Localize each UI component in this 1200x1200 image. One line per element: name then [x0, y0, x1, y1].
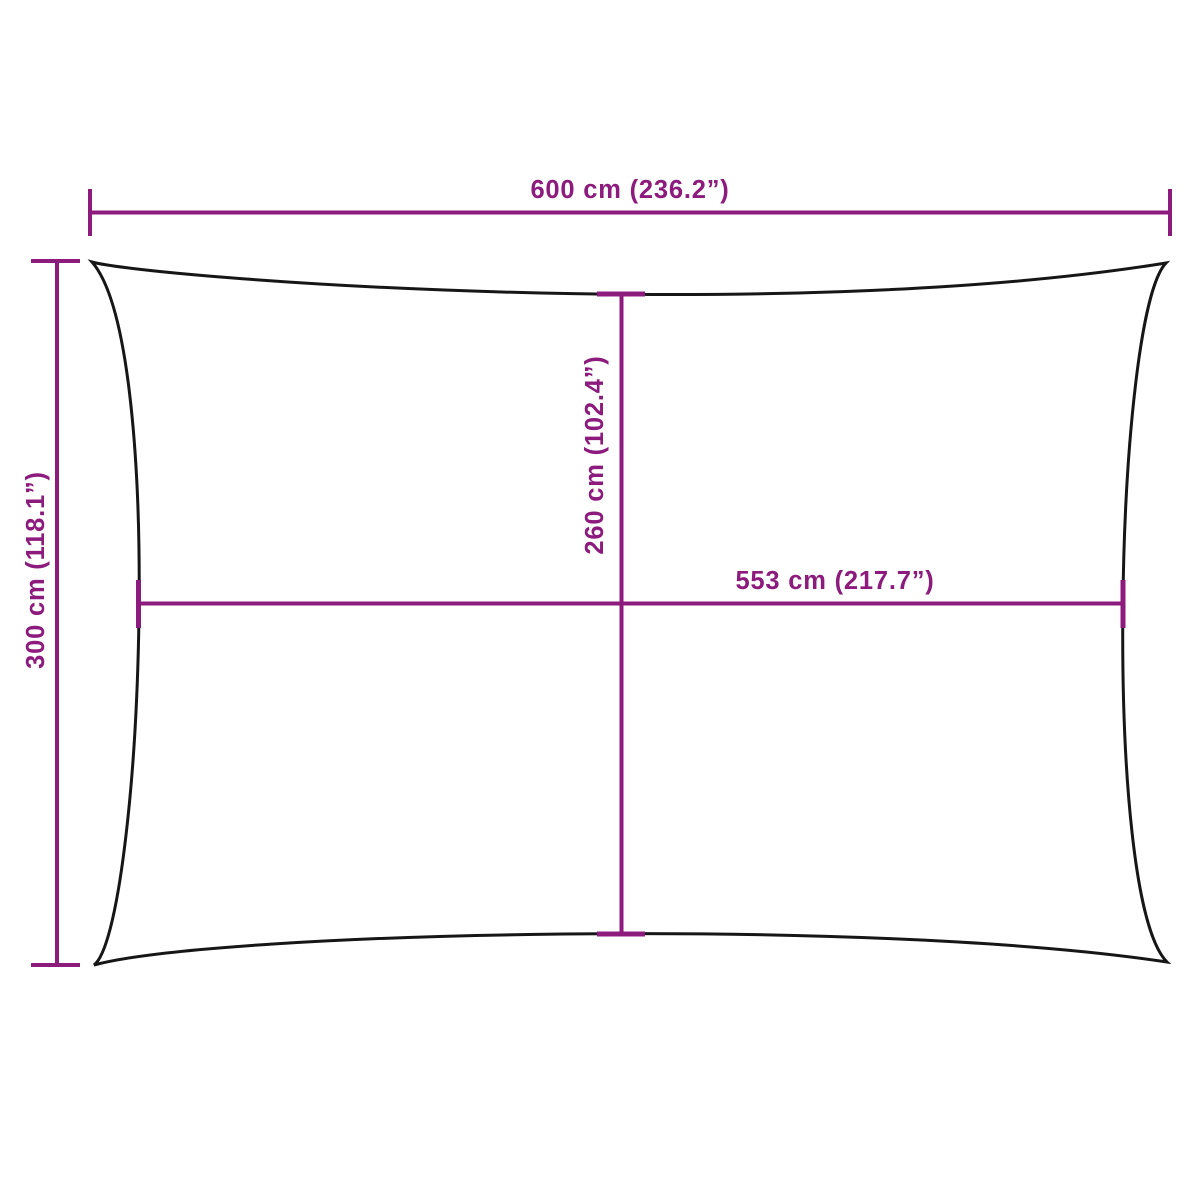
- svg-text:260 cm (102.4”): 260 cm (102.4”): [581, 355, 609, 554]
- svg-text:600 cm (236.2”): 600 cm (236.2”): [530, 176, 729, 204]
- svg-text:300 cm (118.1”): 300 cm (118.1”): [22, 471, 50, 669]
- svg-text:553 cm (217.7”): 553 cm (217.7”): [735, 567, 934, 595]
